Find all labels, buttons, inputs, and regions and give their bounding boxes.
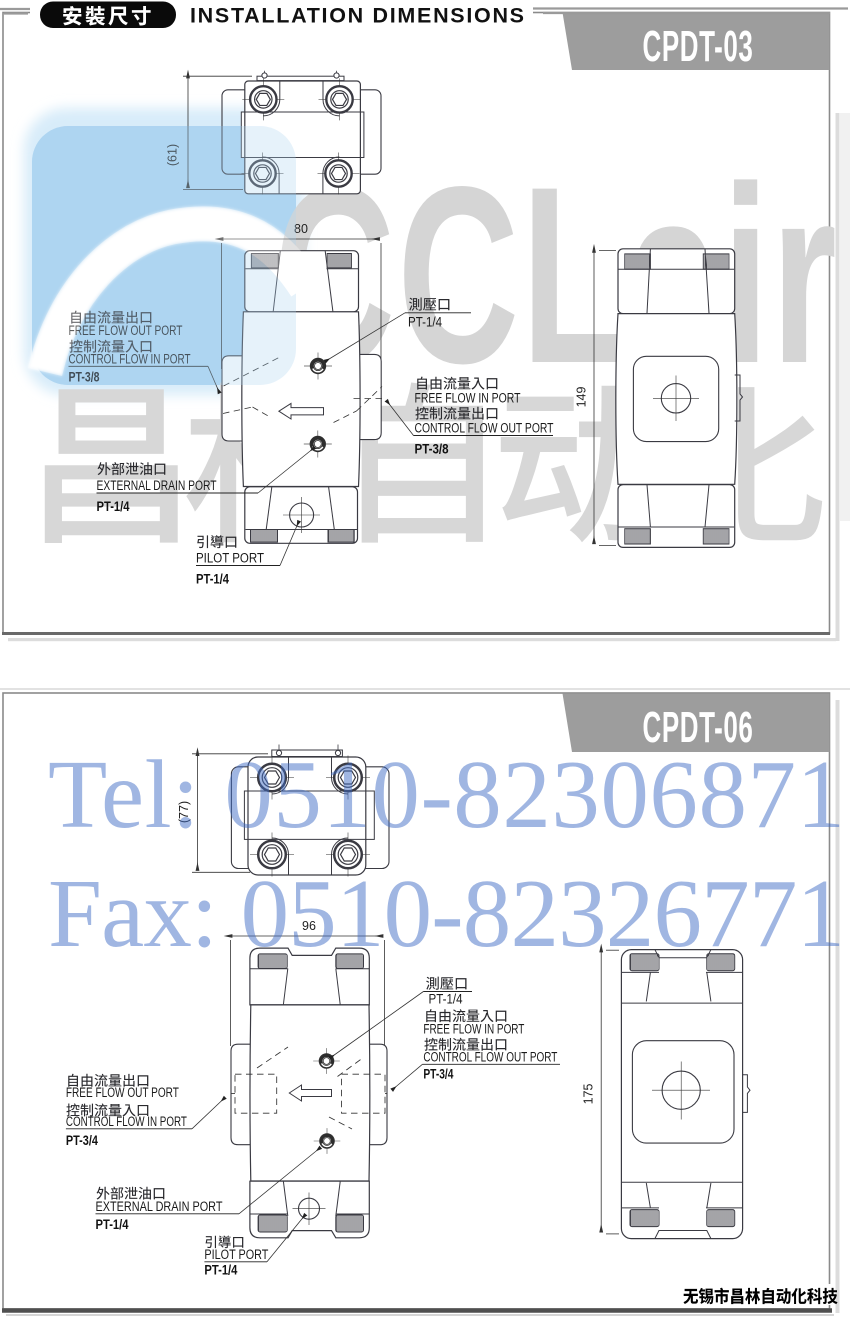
svg-text:INSTALLATION DIMENSIONS: INSTALLATION DIMENSIONS [190, 4, 526, 28]
svg-text:PT-1/4: PT-1/4 [204, 1263, 237, 1278]
svg-text:PILOT PORT: PILOT PORT [196, 551, 264, 566]
svg-text:CONTROL FLOW IN PORT: CONTROL FLOW IN PORT [66, 1114, 187, 1129]
svg-text:EXTERNAL DRAIN PORT: EXTERNAL DRAIN PORT [97, 478, 217, 493]
svg-text:PT-3/4: PT-3/4 [423, 1067, 453, 1082]
svg-text:Tel: 0510-82306871: Tel: 0510-82306871 [48, 741, 845, 848]
svg-text:CONTROL FLOW OUT PORT: CONTROL FLOW OUT PORT [415, 421, 554, 436]
svg-text:PT-1/4: PT-1/4 [429, 992, 463, 1007]
svg-text:CPDT-03: CPDT-03 [643, 21, 754, 71]
svg-text:CONTROL FLOW IN PORT: CONTROL FLOW IN PORT [69, 352, 191, 367]
svg-text:PT-1/4: PT-1/4 [196, 572, 229, 587]
svg-text:149: 149 [575, 387, 589, 408]
svg-text:PILOT PORT: PILOT PORT [204, 1247, 268, 1262]
svg-text:FREE FLOW OUT PORT: FREE FLOW OUT PORT [69, 323, 183, 338]
svg-text:80: 80 [294, 222, 308, 236]
svg-text:PT-3/8: PT-3/8 [69, 370, 100, 385]
svg-text:FREE FLOW IN PORT: FREE FLOW IN PORT [423, 1022, 524, 1037]
svg-text:EXTERNAL DRAIN PORT: EXTERNAL DRAIN PORT [96, 1199, 223, 1214]
svg-text:FREE FLOW IN PORT: FREE FLOW IN PORT [415, 391, 521, 406]
svg-text:(61): (61) [166, 144, 180, 166]
svg-text:Fax: 0510-82326771: Fax: 0510-82326771 [48, 860, 845, 967]
svg-text:PT-1/4: PT-1/4 [96, 1217, 129, 1232]
svg-text:PT-3/4: PT-3/4 [66, 1133, 98, 1148]
svg-text:PT-1/4: PT-1/4 [408, 315, 442, 330]
svg-text:PT-1/4: PT-1/4 [97, 499, 130, 514]
svg-text:PT-3/8: PT-3/8 [415, 442, 449, 457]
svg-text:175: 175 [582, 1084, 596, 1105]
svg-text:FREE FLOW OUT PORT: FREE FLOW OUT PORT [66, 1085, 179, 1100]
svg-text:CONTROL FLOW OUT PORT: CONTROL FLOW OUT PORT [423, 1050, 557, 1065]
